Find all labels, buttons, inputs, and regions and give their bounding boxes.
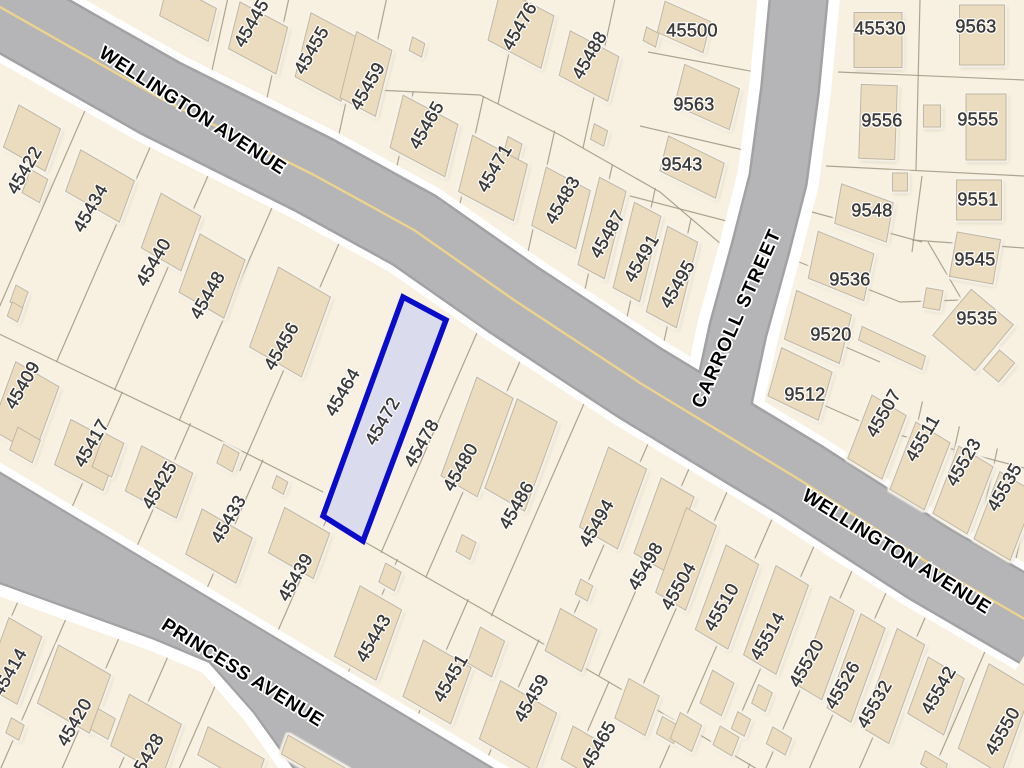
svg-text:9556: 9556 bbox=[861, 110, 902, 130]
svg-text:9563: 9563 bbox=[673, 94, 714, 114]
svg-text:9545: 9545 bbox=[954, 249, 995, 269]
svg-text:45530: 45530 bbox=[854, 18, 906, 38]
svg-text:9520: 9520 bbox=[810, 324, 851, 344]
svg-text:9512: 9512 bbox=[784, 384, 825, 404]
svg-text:9548: 9548 bbox=[851, 200, 892, 220]
svg-text:9551: 9551 bbox=[957, 189, 998, 209]
svg-text:45500: 45500 bbox=[666, 20, 718, 40]
svg-text:9543: 9543 bbox=[661, 154, 702, 174]
svg-text:9563: 9563 bbox=[955, 16, 996, 36]
svg-text:9555: 9555 bbox=[957, 109, 998, 129]
svg-text:9535: 9535 bbox=[956, 308, 997, 328]
svg-text:9536: 9536 bbox=[829, 269, 870, 289]
